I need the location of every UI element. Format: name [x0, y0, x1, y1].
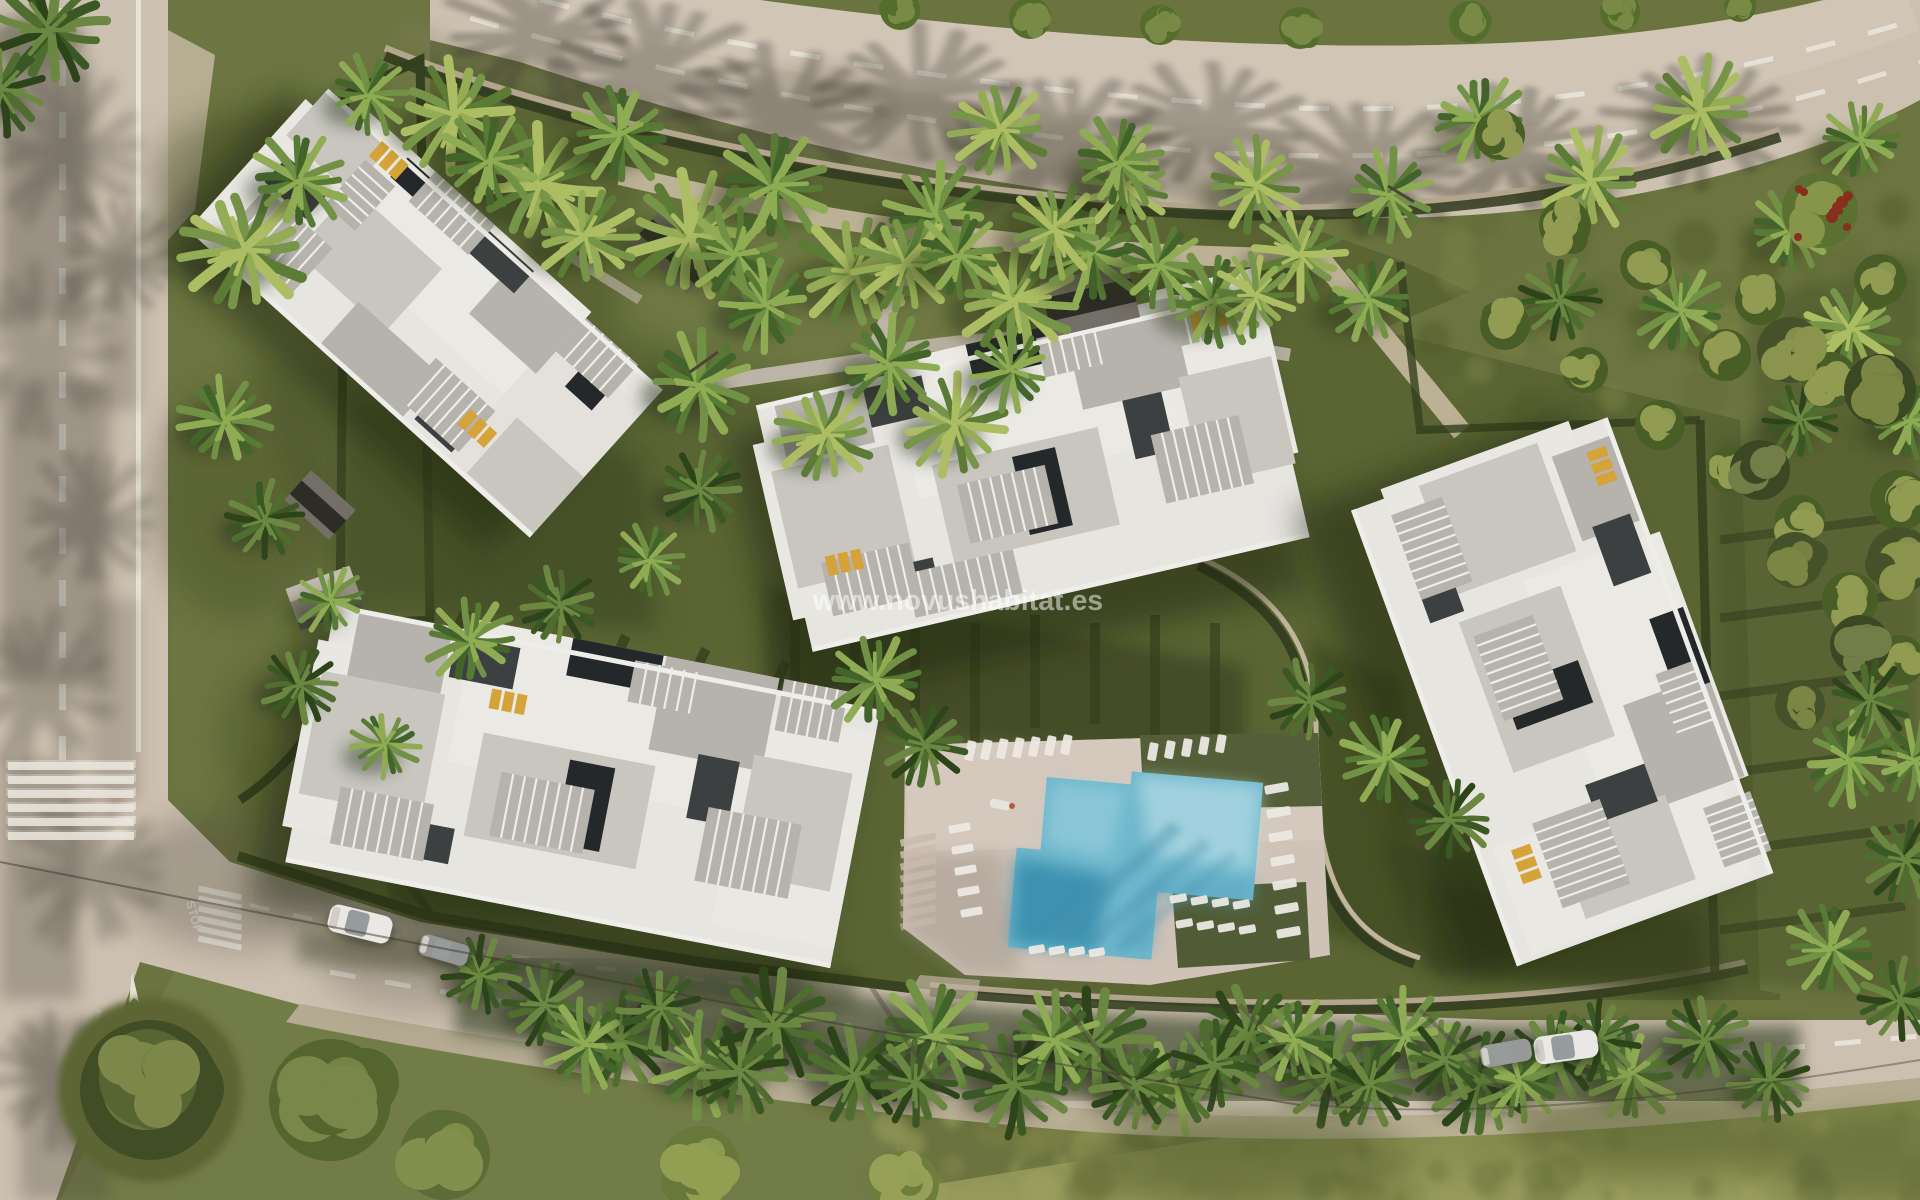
- svg-text:www.novushabitat.es: www.novushabitat.es: [812, 585, 1103, 617]
